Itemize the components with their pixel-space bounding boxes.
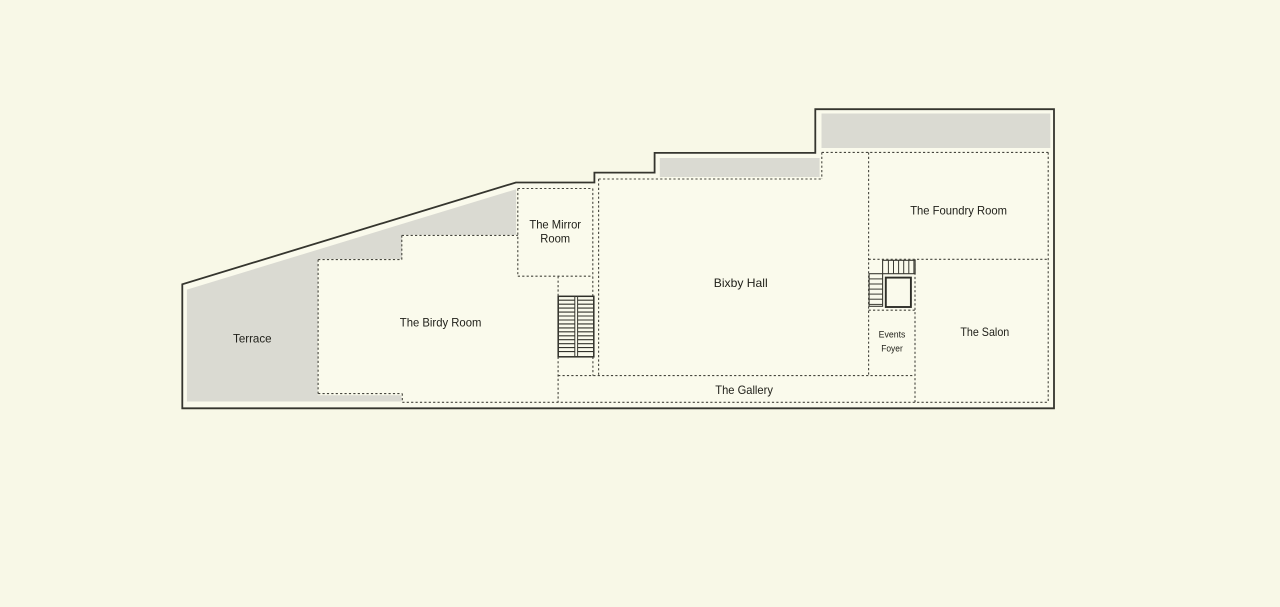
svg-text:Bixby Hall: Bixby Hall (714, 276, 768, 290)
svg-text:The Mirror: The Mirror (529, 218, 581, 232)
svg-text:The Gallery: The Gallery (715, 383, 773, 397)
svg-text:Foyer: Foyer (881, 344, 903, 354)
svg-text:The Birdy Room: The Birdy Room (400, 316, 482, 330)
svg-text:Room: Room (540, 232, 570, 246)
svg-text:The Salon: The Salon (960, 325, 1009, 339)
svg-text:Events: Events (879, 329, 906, 339)
svg-text:Terrace: Terrace (233, 332, 272, 346)
svg-text:The Foundry Room: The Foundry Room (910, 203, 1007, 217)
